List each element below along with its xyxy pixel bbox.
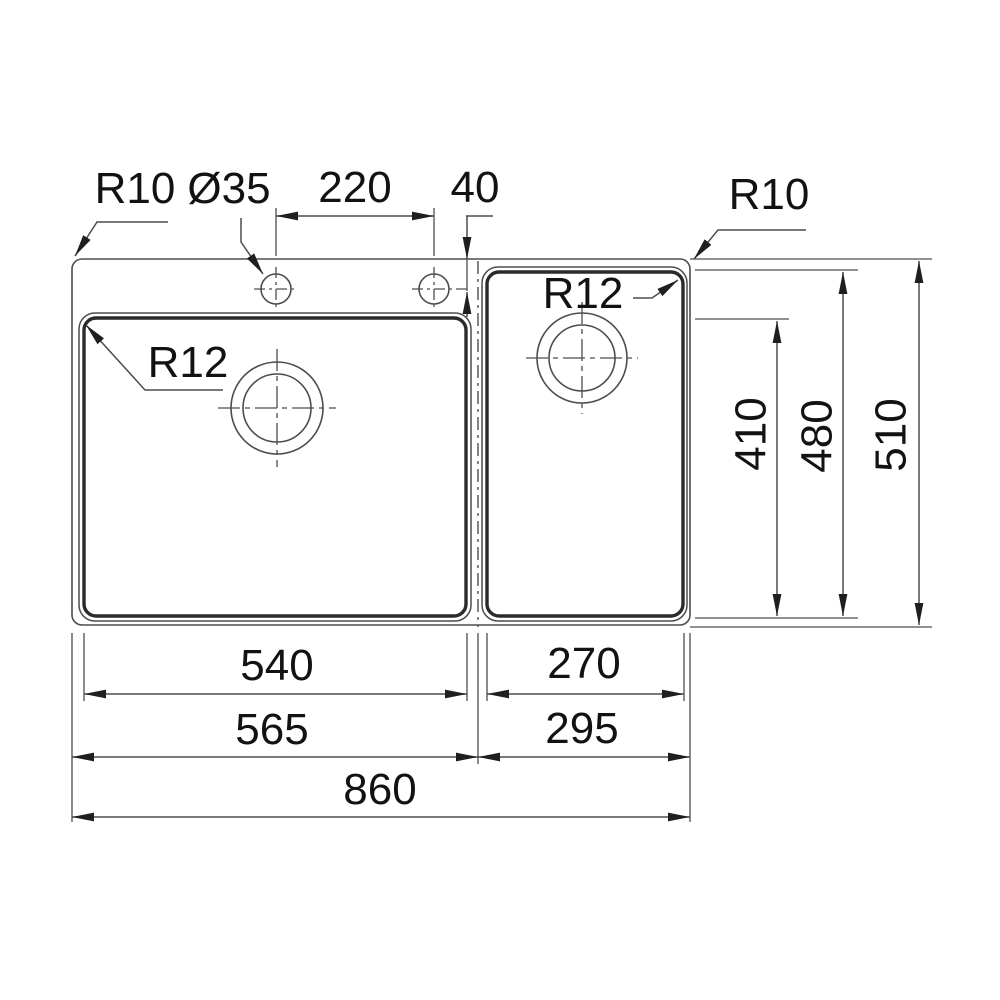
- overall-width-label: 860: [343, 765, 416, 814]
- right-bowl-corner-radius-label: R12: [543, 269, 624, 318]
- drain-left: [218, 349, 336, 467]
- sink-technical-drawing: 220 40 R10 Ø35 R10 R12 R12 410: [0, 0, 1000, 1000]
- dim-right-bowl-width: 270: [487, 639, 684, 694]
- drain-right: [526, 302, 638, 414]
- top-left-corner-radius-label: R10: [95, 164, 176, 213]
- faucet-hole-rear-offset-label: 40: [451, 163, 500, 212]
- dim-right-section-width: 295: [478, 704, 690, 757]
- leader-left-bowl-corner-radius: R12: [86, 325, 228, 390]
- leader-faucet-hole-diameter: Ø35: [187, 164, 270, 274]
- faucet-hole-right: [412, 267, 471, 311]
- right-bowl-rim-outer: [482, 267, 687, 621]
- faucet-hole-spacing-label: 220: [318, 163, 391, 212]
- right-bowl-width-label: 270: [547, 639, 620, 688]
- dim-bowl-depth: 410: [695, 319, 789, 616]
- dim-overall-width: 860: [72, 765, 690, 817]
- leader-top-left-corner-radius: R10: [75, 164, 175, 256]
- left-bowl-rim-outer: [79, 313, 471, 621]
- faucet-hole-left: [254, 267, 298, 311]
- left-section-width-label: 565: [235, 705, 308, 754]
- dim-left-bowl-width: 540: [84, 641, 467, 694]
- right-bowl-depth-label: 480: [792, 399, 841, 472]
- top-right-corner-radius-label: R10: [729, 170, 810, 219]
- dim-left-section-width: 565: [72, 705, 478, 757]
- left-bowl-width-label: 540: [240, 641, 313, 690]
- left-bowl-corner-radius-label: R12: [148, 338, 229, 387]
- overall-depth-label: 510: [866, 398, 915, 471]
- faucet-hole-diameter-label: Ø35: [187, 164, 270, 213]
- leader-top-right-corner-radius: R10: [694, 170, 809, 259]
- bowl-depth-label: 410: [726, 397, 775, 470]
- right-section-width-label: 295: [545, 704, 618, 753]
- leader-right-bowl-corner-radius: R12: [543, 269, 678, 318]
- dim-faucet-hole-rear-offset: 40: [451, 163, 500, 317]
- right-bowl: [487, 272, 683, 616]
- dim-faucet-hole-spacing: 220: [276, 163, 434, 256]
